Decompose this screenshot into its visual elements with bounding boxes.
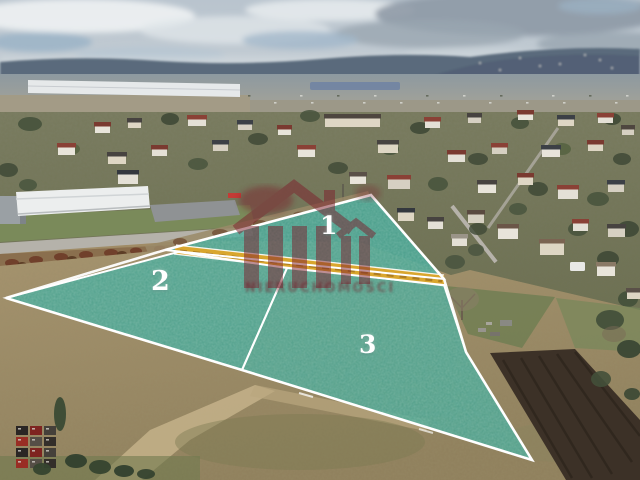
white-van — [570, 262, 585, 271]
photo-scene — [0, 0, 640, 480]
distant-blue-building — [310, 82, 400, 90]
aerial-photo: NIERUCHOMOŚCI 1 2 3 — [0, 0, 640, 480]
plot-1-label: 1 — [320, 213, 337, 238]
plot-2-label: 2 — [151, 268, 170, 295]
red-truck — [228, 193, 241, 198]
distant-plain — [0, 74, 640, 116]
plot-3-label: 3 — [359, 332, 376, 357]
